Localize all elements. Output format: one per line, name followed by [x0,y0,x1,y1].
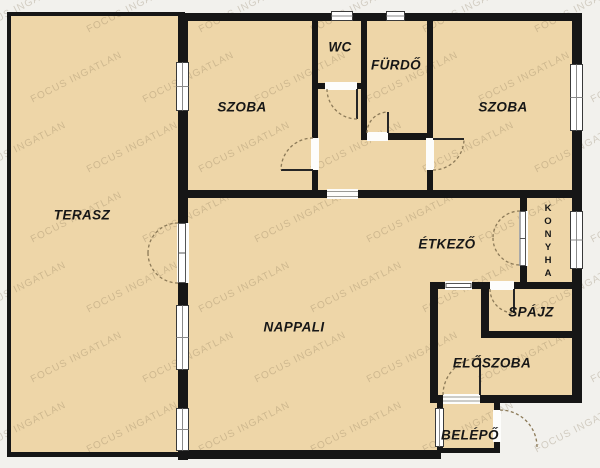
floor-plan: FOCUS INGATLANFOCUS INGATLANFOCUS INGATL… [0,0,600,468]
room-label-konyha: KONYHA [543,203,554,281]
window-konyha-east [571,212,583,269]
gap-szoba2-door [426,138,434,170]
door-szoba1 [281,138,313,170]
wall-terasz-bottom [7,452,185,457]
wall-wc-furdo [361,21,367,133]
wall-spajz-west [481,289,489,338]
door-belepo-outside [500,410,537,447]
wall-terasz-left [7,12,11,457]
gap-wc-door [325,82,357,90]
gap-entrance-door [443,394,480,404]
door-wc [327,89,357,119]
wall-belepo-bottom [437,448,500,453]
door-furdo [367,112,388,133]
room-label-furdo: FÜRDŐ [371,58,421,73]
window-szoba1-west [177,63,189,111]
gap-hall-opening [327,189,358,199]
room-label-terasz: TERASZ [54,208,110,223]
etkezo-eloszoba-frame [446,284,471,288]
window-furdo-north [387,12,405,21]
room-label-etkezo: ÉTKEZŐ [418,237,475,252]
door-szoba2 [433,139,464,170]
wall-nappali-eloszoba [430,282,438,399]
gap-furdo-door [367,132,388,141]
room-label-nappali: NAPPALI [263,320,324,335]
wall-mid-horizontal [188,190,582,198]
wall-spajz-bottom [481,331,582,338]
wall-konyha-stub-bottom [520,266,527,282]
konyha-double-door [493,211,526,266]
window-nappali-west-2 [177,409,189,451]
gap-szoba1-door [311,138,319,170]
window-nappali-west-1 [177,306,189,370]
window-szoba2-east [571,65,583,131]
terasz-french-door [148,223,186,283]
room-label-belepo: BELÉPŐ [441,428,499,443]
room-label-eloszoba: ELŐSZOBA [453,356,531,371]
room-label-spajz: SPÁJZ [508,305,554,320]
walls-and-openings [0,0,600,468]
wall-konyha-stub-top [520,198,527,211]
room-label-wc: WC [328,40,351,55]
room-label-szoba-left: SZOBA [217,100,266,115]
gap-spajz-door [490,281,514,290]
room-label-szoba-right: SZOBA [478,100,527,115]
wall-north [178,13,582,21]
window-wc-north [332,12,353,21]
wall-south-nappali [178,450,441,459]
wall-terasz-top [7,12,185,16]
